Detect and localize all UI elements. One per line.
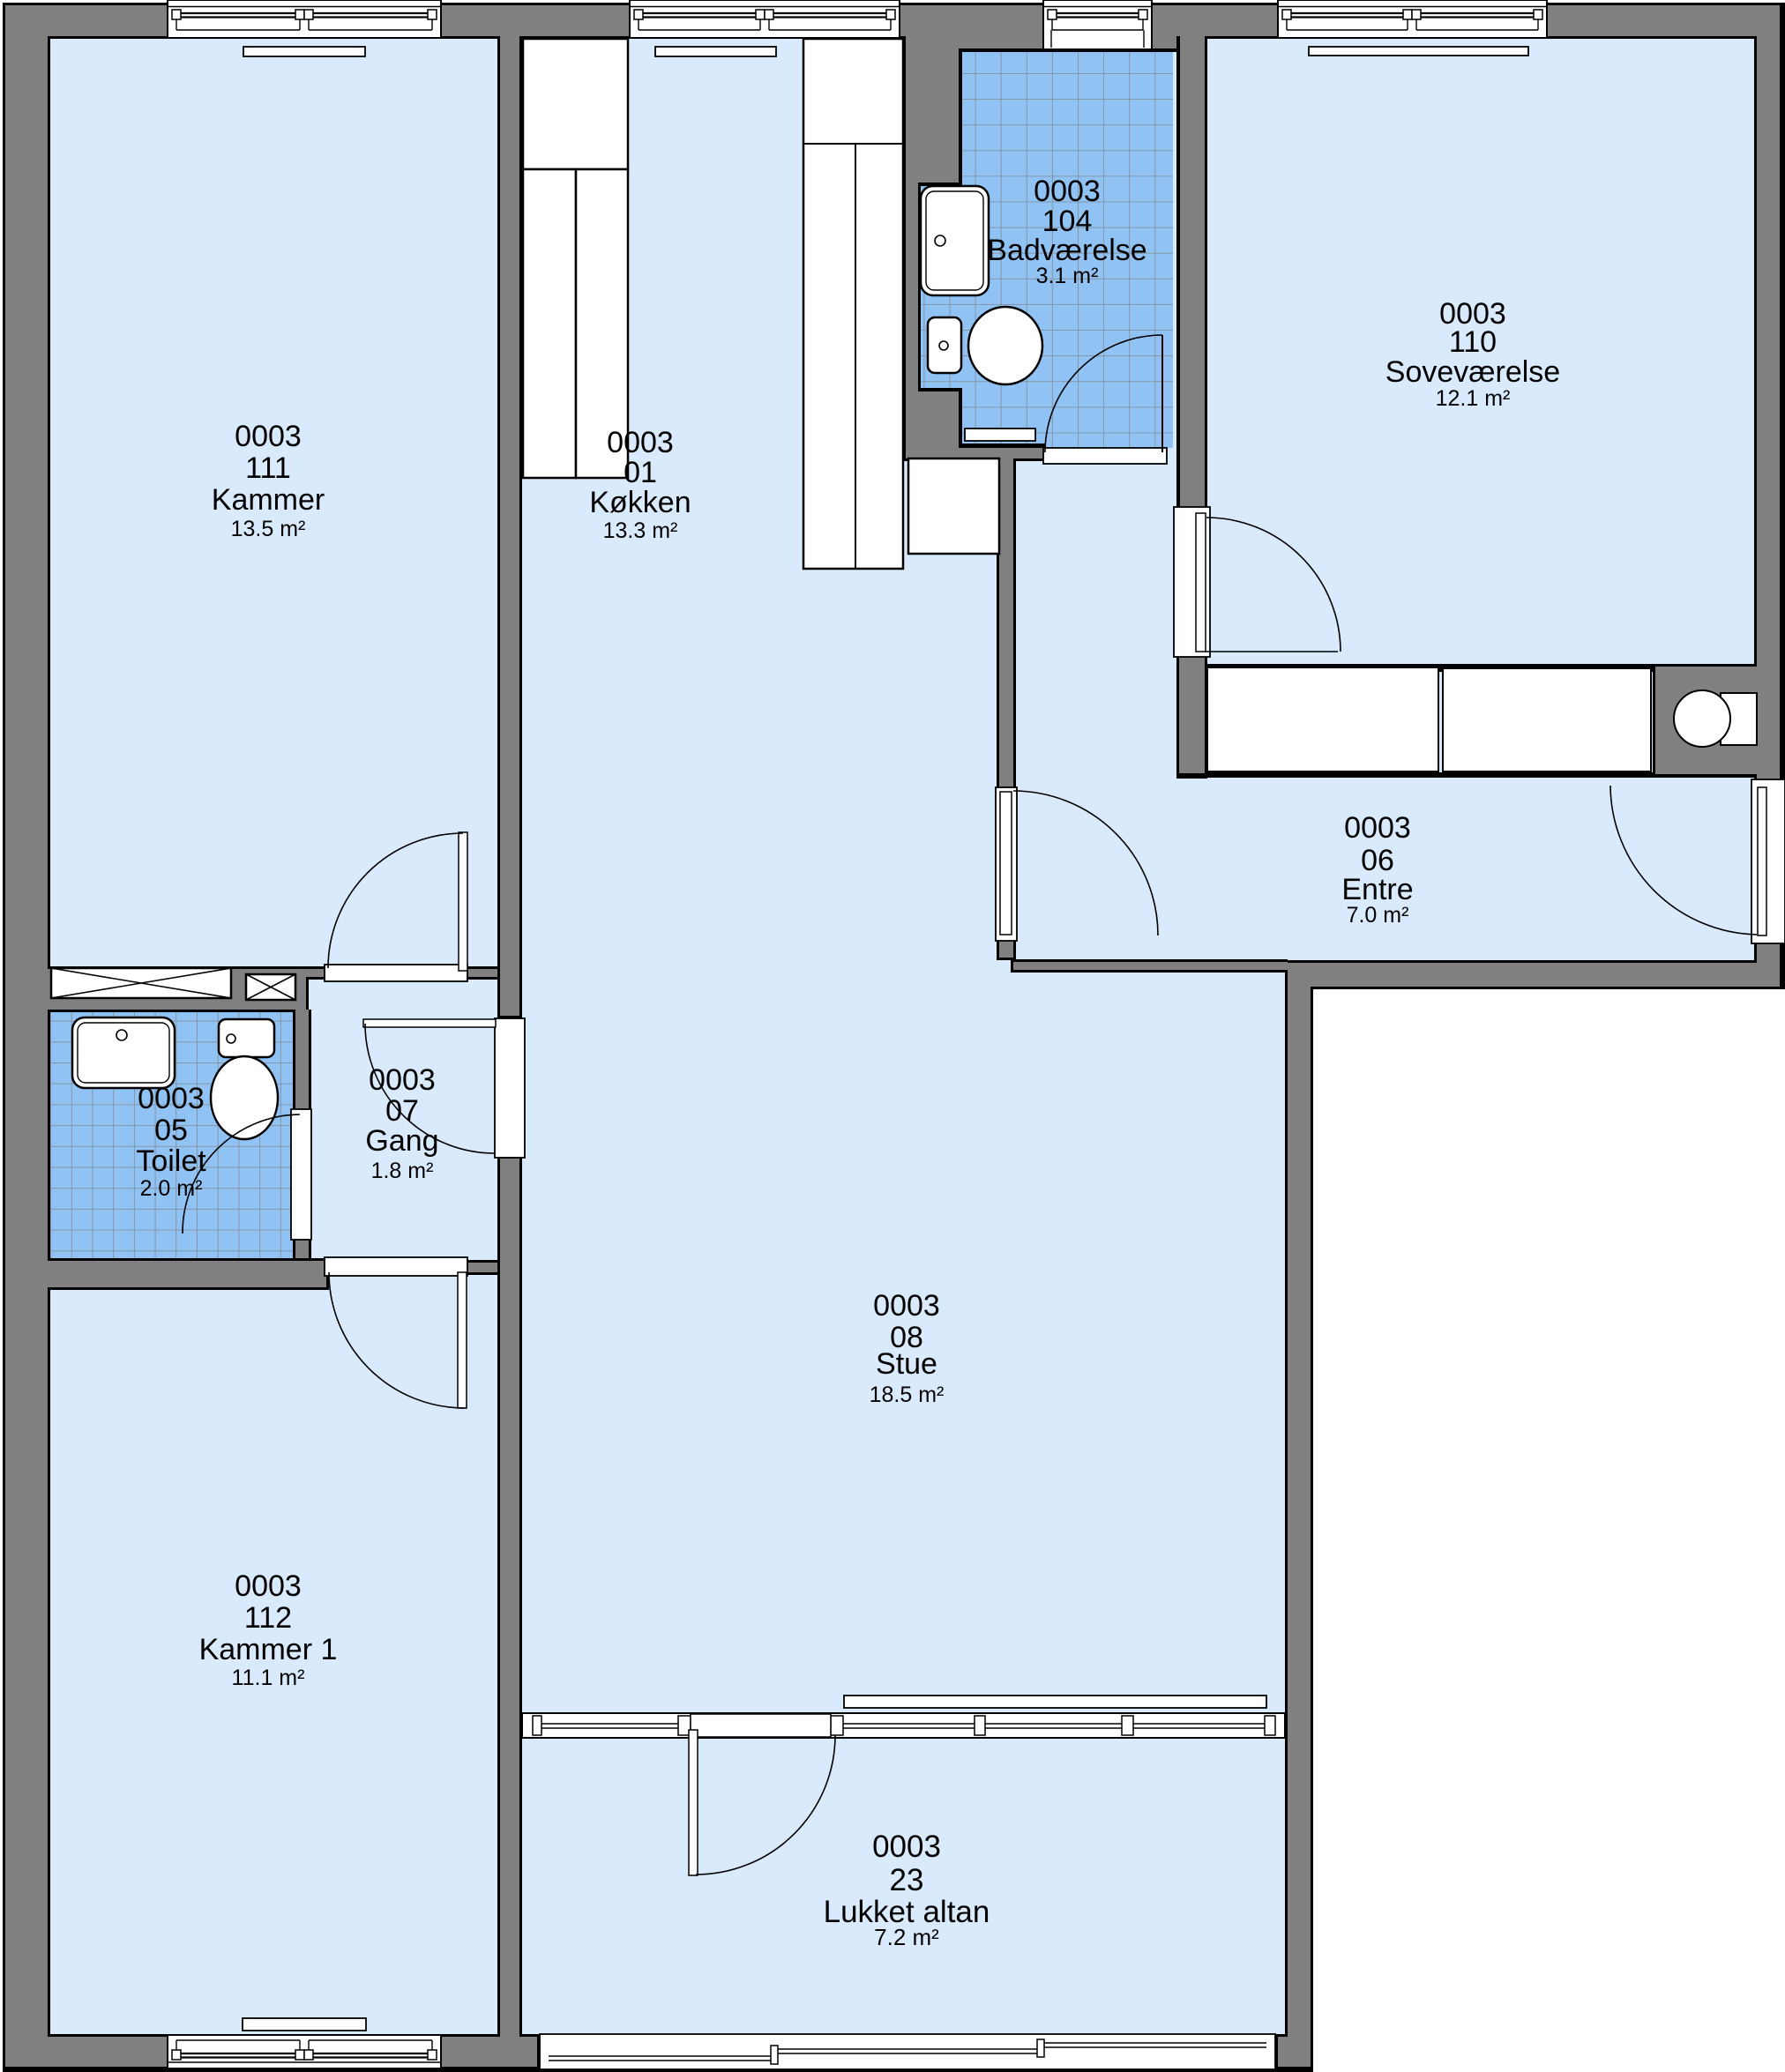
svg-text:112: 112	[244, 1601, 292, 1635]
svg-text:7.0 m²: 7.0 m²	[1347, 903, 1409, 928]
svg-text:Badværelse: Badværelse	[987, 234, 1146, 267]
svg-text:01: 01	[624, 456, 657, 489]
svg-text:07: 07	[385, 1094, 419, 1128]
svg-text:23: 23	[890, 1863, 924, 1897]
svg-text:0003: 0003	[1034, 175, 1101, 208]
svg-text:0003: 0003	[873, 1289, 940, 1323]
svg-text:Gang: Gang	[365, 1124, 438, 1158]
svg-text:7.2 m²: 7.2 m²	[874, 1924, 939, 1950]
svg-text:Kammer: Kammer	[212, 483, 325, 517]
svg-text:Køkken: Køkken	[589, 486, 691, 519]
svg-text:Soveværelse: Soveværelse	[1385, 355, 1560, 389]
svg-text:18.5 m²: 18.5 m²	[870, 1383, 945, 1407]
svg-text:1.8 m²: 1.8 m²	[371, 1159, 434, 1183]
svg-text:Kammer 1: Kammer 1	[199, 1633, 338, 1666]
svg-text:05: 05	[154, 1114, 188, 1147]
svg-text:11.1 m²: 11.1 m²	[232, 1666, 305, 1690]
svg-text:2.0 m²: 2.0 m²	[140, 1176, 203, 1201]
svg-text:0003: 0003	[607, 426, 674, 459]
svg-text:Toilet: Toilet	[136, 1144, 206, 1178]
svg-text:0003: 0003	[235, 420, 302, 453]
svg-text:3.1 m²: 3.1 m²	[1036, 264, 1099, 288]
svg-text:12.1 m²: 12.1 m²	[1436, 386, 1511, 411]
svg-text:110: 110	[1449, 325, 1497, 359]
svg-text:0003: 0003	[138, 1082, 205, 1115]
svg-text:0003: 0003	[1344, 811, 1411, 845]
svg-text:0003: 0003	[369, 1063, 436, 1097]
svg-text:13.3 m²: 13.3 m²	[603, 518, 678, 543]
svg-text:0003: 0003	[235, 1569, 302, 1603]
svg-text:Stue: Stue	[876, 1347, 937, 1381]
svg-text:111: 111	[245, 451, 291, 485]
svg-text:13.5 m²: 13.5 m²	[231, 517, 306, 541]
svg-text:0003: 0003	[872, 1830, 941, 1864]
svg-text:Entre: Entre	[1341, 873, 1413, 906]
